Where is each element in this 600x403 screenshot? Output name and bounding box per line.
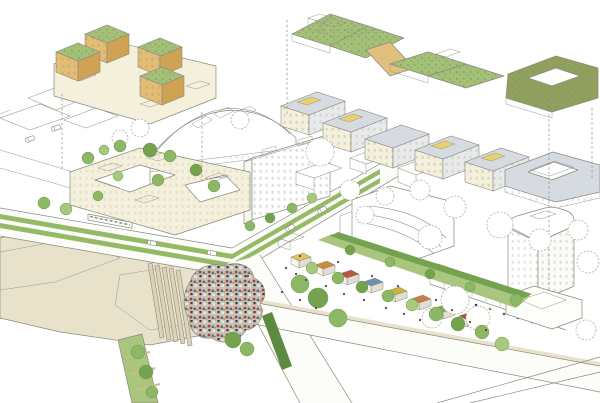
person-figure bbox=[299, 299, 301, 301]
person-figure bbox=[419, 319, 421, 321]
sketch-tree bbox=[576, 320, 596, 340]
tree bbox=[475, 325, 489, 339]
tree bbox=[510, 294, 522, 306]
sketch-tree bbox=[340, 180, 360, 200]
tree bbox=[495, 337, 509, 351]
tree bbox=[465, 282, 475, 292]
person-figure bbox=[469, 321, 471, 323]
person-figure bbox=[305, 279, 307, 281]
tree bbox=[429, 307, 443, 321]
tree bbox=[143, 143, 157, 157]
urban-axonometric-illustration bbox=[0, 0, 600, 403]
person-figure bbox=[503, 313, 506, 316]
person-figure bbox=[261, 285, 263, 287]
person-figure bbox=[385, 307, 387, 309]
sketch-tree bbox=[529, 229, 551, 251]
tree bbox=[38, 197, 50, 209]
person-figure bbox=[315, 307, 317, 309]
person-figure bbox=[489, 308, 492, 311]
person-figure bbox=[363, 299, 365, 301]
tree bbox=[332, 272, 344, 284]
tree bbox=[93, 191, 103, 201]
tree bbox=[425, 269, 435, 279]
sketch-tree bbox=[577, 251, 599, 273]
tree bbox=[306, 262, 318, 274]
person-figure bbox=[337, 261, 339, 263]
tree bbox=[245, 221, 255, 231]
tree bbox=[291, 275, 309, 293]
sketch-tree bbox=[487, 212, 513, 238]
sketch-tree bbox=[441, 286, 469, 314]
tree bbox=[113, 171, 123, 181]
tree bbox=[385, 257, 395, 267]
tree bbox=[329, 309, 347, 327]
sketch-tree bbox=[356, 206, 374, 224]
tree bbox=[240, 342, 254, 356]
tree bbox=[99, 145, 109, 155]
sketch-tree bbox=[306, 138, 334, 166]
tree bbox=[307, 193, 317, 203]
person-figure bbox=[451, 309, 453, 311]
tree bbox=[82, 152, 94, 164]
tree bbox=[60, 203, 72, 215]
person-figure bbox=[299, 255, 301, 257]
person-figure bbox=[295, 273, 297, 275]
sketch-tree bbox=[131, 119, 149, 137]
sketch-tree bbox=[376, 187, 394, 205]
tree bbox=[139, 365, 153, 379]
tree bbox=[164, 150, 176, 162]
illustration-canvas bbox=[0, 0, 600, 403]
sketch-tree bbox=[231, 111, 249, 129]
tree bbox=[382, 290, 394, 302]
tree bbox=[152, 174, 164, 186]
person-figure bbox=[285, 267, 287, 269]
tree bbox=[451, 317, 465, 331]
person-figure bbox=[325, 285, 327, 287]
sketch-tree bbox=[568, 220, 588, 240]
tree bbox=[345, 245, 355, 255]
tree bbox=[208, 180, 220, 192]
tree bbox=[131, 345, 145, 359]
tree bbox=[114, 140, 126, 152]
tree bbox=[406, 299, 418, 311]
person-figure bbox=[343, 293, 345, 295]
person-figure bbox=[247, 275, 249, 277]
person-figure bbox=[435, 299, 437, 301]
sketch-tree bbox=[418, 225, 442, 249]
sketch-tree bbox=[444, 196, 466, 218]
tree bbox=[287, 203, 297, 213]
tree bbox=[265, 213, 275, 223]
tree bbox=[356, 281, 368, 293]
tree bbox=[308, 288, 328, 308]
tree bbox=[190, 164, 202, 176]
sketch-tree bbox=[410, 180, 430, 200]
person-figure bbox=[281, 291, 283, 293]
person-figure bbox=[397, 285, 399, 287]
tree bbox=[225, 332, 241, 348]
tree bbox=[146, 386, 158, 398]
person-figure bbox=[485, 329, 487, 331]
person-figure bbox=[403, 313, 405, 315]
person-figure bbox=[371, 275, 373, 277]
